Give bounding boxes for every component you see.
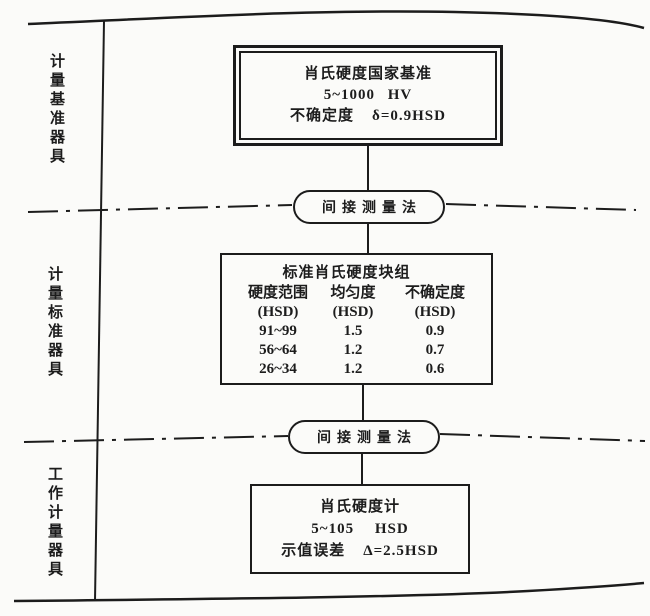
transfer-method-oval-2: 间接测量法 [288, 420, 440, 454]
section-divider-1-left [28, 205, 292, 212]
section-label-primary-standards: 计量基准器具 [46, 53, 67, 167]
uniformity-value: 1.5 [320, 322, 386, 341]
section-label-measurement-standards: 计量标准器具 [44, 266, 65, 380]
national-standard-title: 肖氏硬度国家基准 [304, 64, 432, 85]
national-standard-uncertainty: 不确定度δ=0.9HSD [290, 106, 446, 127]
uncertainty-label: 不确定度 [290, 108, 354, 124]
table-header-row: 硬度范围 均匀度 不确定度 [236, 284, 484, 303]
working-instrument-error: 示值误差Δ=2.5HSD [281, 540, 439, 562]
column-header: 均匀度 [320, 284, 386, 303]
table-units-row: (HSD) (HSD) (HSD) [236, 303, 484, 322]
transfer-method-label: 间接测量法 [311, 427, 417, 447]
uncertainty-value: δ=0.9HSD [372, 108, 446, 124]
section-divider-1-right [446, 204, 636, 210]
table-row: 91~99 1.5 0.9 [236, 322, 484, 341]
column-header: 不确定度 [386, 284, 484, 303]
table-row: 56~64 1.2 0.7 [236, 341, 484, 360]
column-unit: (HSD) [236, 303, 320, 322]
column-unit: (HSD) [386, 303, 484, 322]
working-instrument-title: 肖氏硬度计 [320, 496, 400, 518]
working-instrument-box: 肖氏硬度计 5~105 HSD 示值误差Δ=2.5HSD [250, 484, 470, 574]
uncertainty-value: 0.9 [386, 322, 484, 341]
hardness-range: 91~99 [236, 322, 320, 341]
uncertainty-value: 0.6 [386, 360, 484, 379]
column-unit: (HSD) [320, 303, 386, 322]
bottom-border-line [14, 583, 644, 601]
standard-blocks-box: 标准肖氏硬度块组 硬度范围 均匀度 不确定度 (HSD) (HSD) (HSD)… [220, 253, 493, 385]
error-label: 示值误差 [281, 543, 345, 559]
hardness-range: 56~64 [236, 341, 320, 360]
error-value: Δ=2.5HSD [363, 543, 439, 559]
column-header: 硬度范围 [236, 284, 320, 303]
transfer-method-oval-1: 间接测量法 [293, 190, 445, 224]
section-label-working-instruments: 工作计量器具 [44, 466, 65, 580]
hardness-range: 26~34 [236, 360, 320, 379]
section-divider-2-right [440, 434, 645, 441]
working-instrument-range: 5~105 HSD [311, 518, 408, 540]
standard-blocks-title: 标准肖氏硬度块组 [242, 264, 451, 283]
national-standard-range: 5~1000 HV [324, 85, 413, 106]
national-standard-box: 肖氏硬度国家基准 5~1000 HV 不确定度δ=0.9HSD [233, 45, 503, 146]
transfer-method-label: 间接测量法 [316, 197, 422, 217]
table-row: 26~34 1.2 0.6 [236, 360, 484, 379]
left-boundary-line [95, 21, 104, 601]
top-border-line [28, 11, 644, 28]
verification-scheme-page: { "colors": { "ink": "#1c1c1c", "paper":… [0, 0, 650, 616]
uncertainty-value: 0.7 [386, 341, 484, 360]
uniformity-value: 1.2 [320, 360, 386, 379]
uniformity-value: 1.2 [320, 341, 386, 360]
standard-blocks-table: 硬度范围 均匀度 不确定度 (HSD) (HSD) (HSD) 91~99 1.… [236, 284, 484, 379]
section-divider-2-left [24, 436, 288, 442]
